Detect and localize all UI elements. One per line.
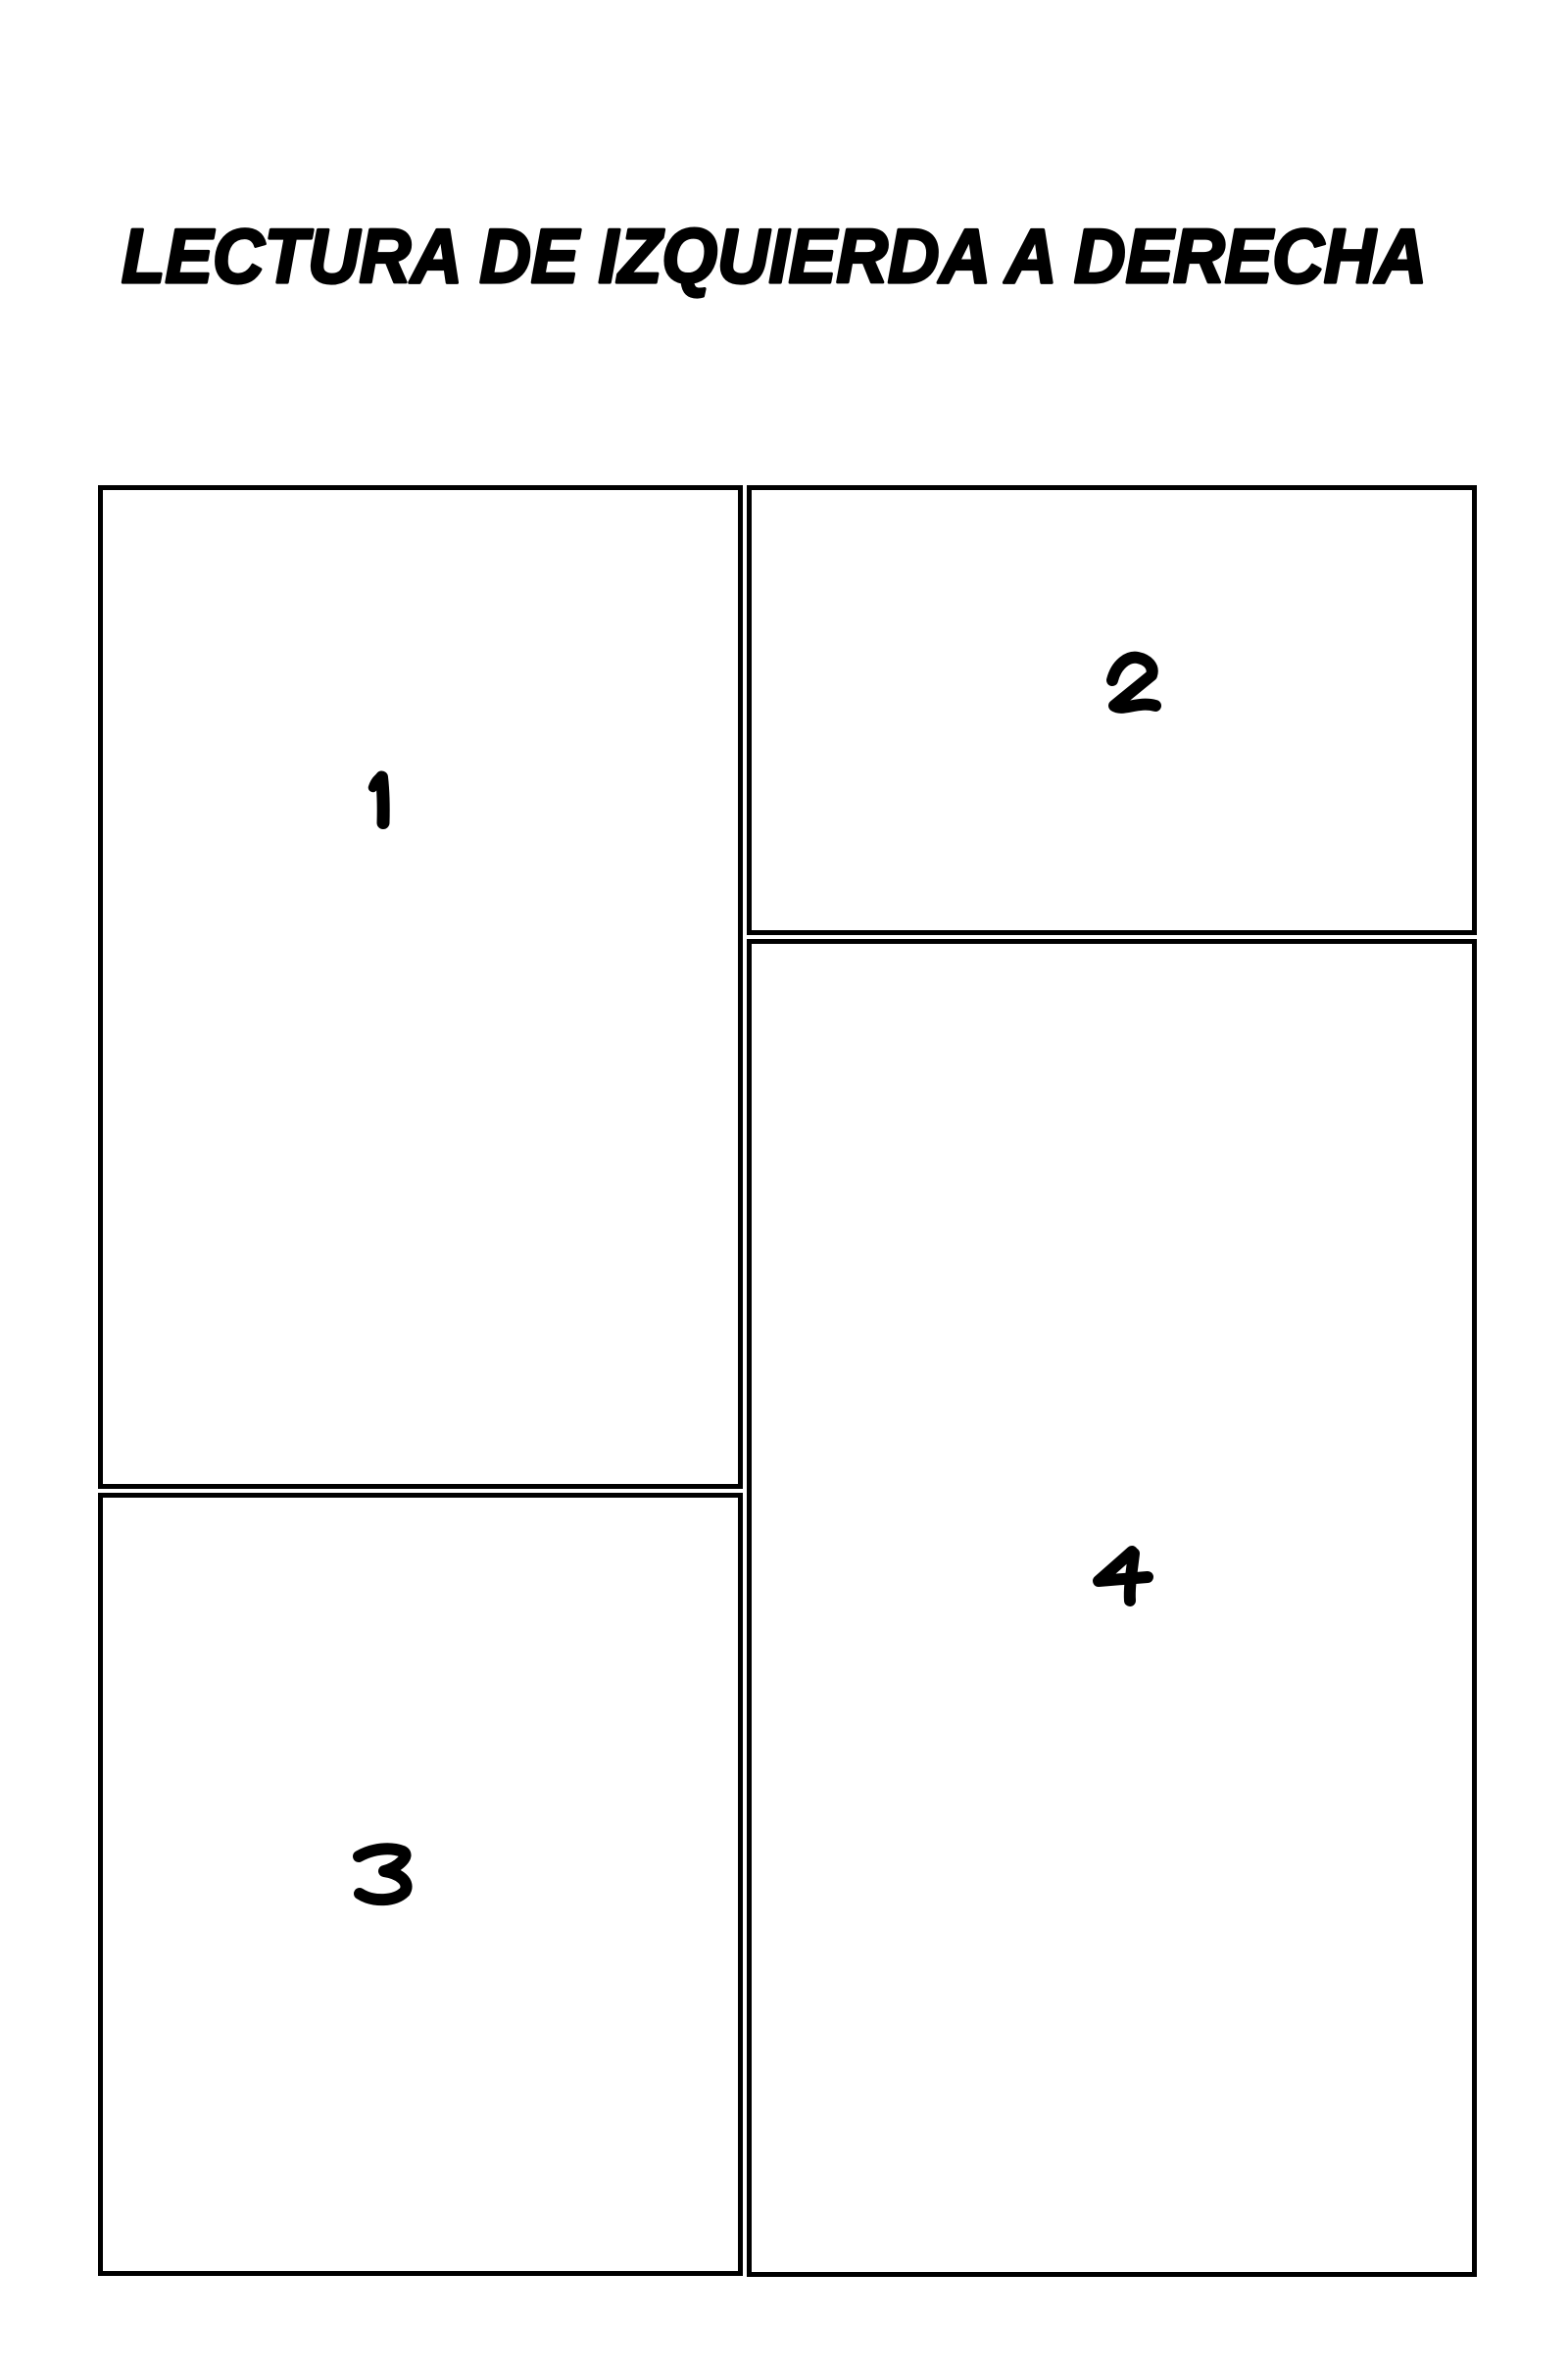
svg-text:LECTURA DE IZQUIERDA A DERECHA: LECTURA DE IZQUIERDA A DERECHA bbox=[122, 213, 1427, 299]
